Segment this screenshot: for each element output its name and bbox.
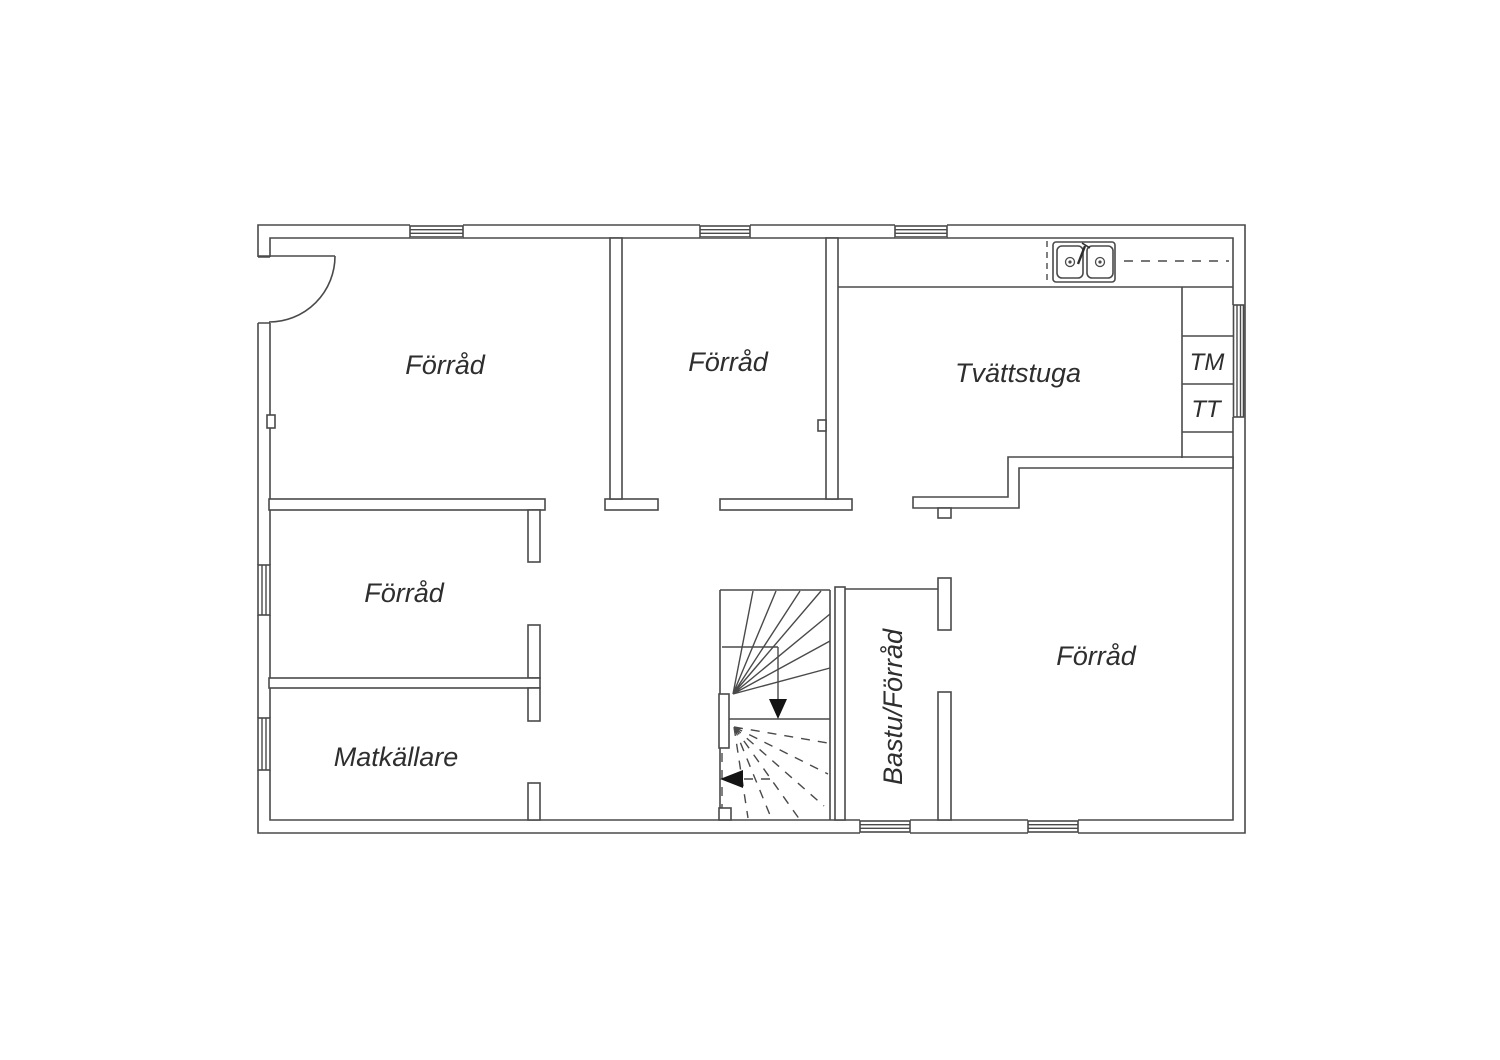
- room-label-forrad-top-middle: Förråd: [688, 347, 769, 377]
- stair-newel-wall: [719, 694, 729, 748]
- sink: [1053, 242, 1115, 282]
- window-bottom-2: [1028, 818, 1078, 834]
- window-left-2: [255, 718, 273, 770]
- door-swing-arc: [269, 256, 335, 322]
- window-right: [1232, 305, 1244, 417]
- room-label-matkallare: Matkällare: [334, 742, 459, 772]
- floor-plan-canvas: Förråd Förråd Tvättstuga Förråd Matkälla…: [0, 0, 1500, 1060]
- entrance-door: [256, 256, 335, 323]
- appliance-label-tt: TT: [1191, 396, 1223, 423]
- window-top-2: [700, 222, 750, 238]
- room-label-forrad-mid-left: Förråd: [364, 578, 445, 608]
- interior-walls: [267, 238, 1233, 820]
- window-bottom-1: [860, 818, 910, 834]
- floor-plan-page: Förråd Förråd Tvättstuga Förråd Matkälla…: [0, 0, 1500, 1060]
- window-top-1: [410, 222, 463, 238]
- stair-bottom-pier: [719, 808, 731, 820]
- room-label-forrad-top-left: Förråd: [405, 350, 486, 380]
- staircase: [719, 590, 830, 820]
- room-label-forrad-right: Förråd: [1056, 641, 1137, 671]
- appliance-label-tm: TM: [1190, 349, 1225, 376]
- stair-arrow-left-icon: [720, 770, 743, 788]
- room-label-bastu-forrad: Bastu/Förråd: [878, 628, 908, 785]
- stair-arrow-down-icon: [769, 699, 787, 719]
- window-top-3: [895, 222, 947, 238]
- faucet-icon: [1078, 246, 1085, 264]
- room-label-tvattstuga: Tvättstuga: [955, 358, 1081, 388]
- stair-winders-upper: [722, 591, 830, 719]
- window-left-1: [255, 565, 273, 615]
- stair-winders-lower: [720, 727, 828, 820]
- kitchen-counter: [838, 241, 1233, 287]
